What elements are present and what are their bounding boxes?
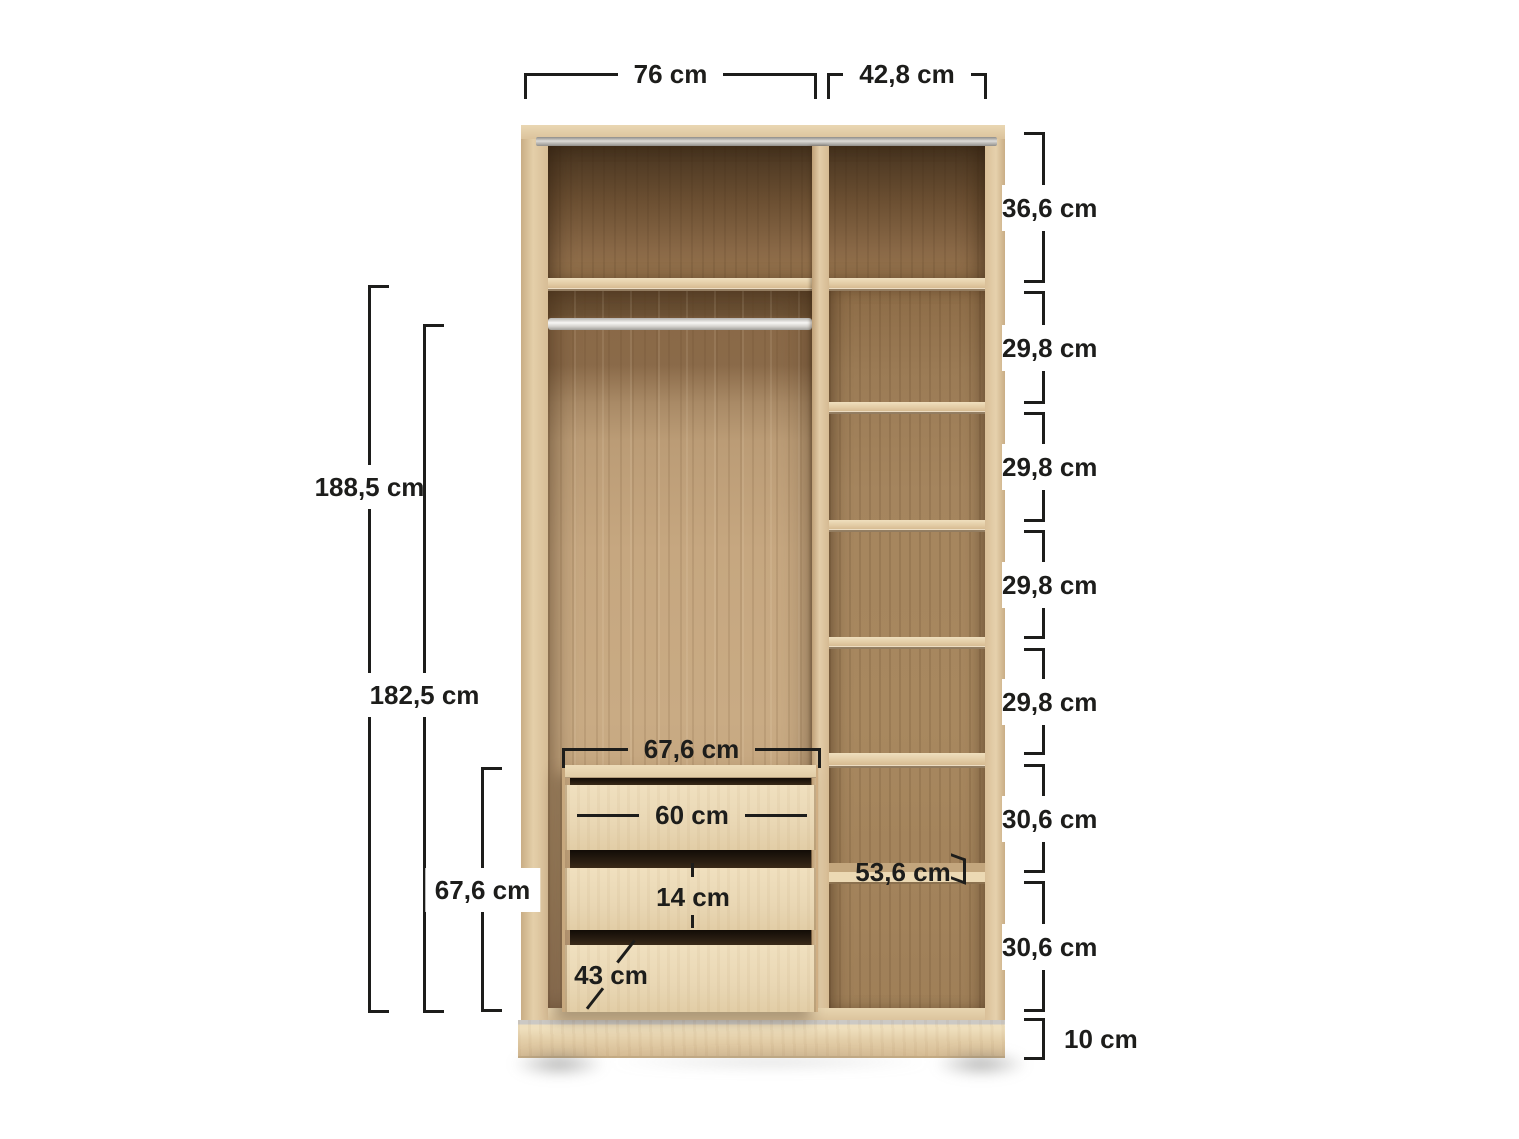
hanging-rod <box>548 318 812 330</box>
drawer-unit-top-board <box>565 765 816 778</box>
right-shelf-2 <box>829 520 985 532</box>
dim-label: 29,8 cm <box>1002 325 1107 371</box>
dim-label: 182,5 cm <box>360 673 490 717</box>
dim-label: 60 cm <box>639 802 745 828</box>
right-compartment-back <box>829 291 985 1008</box>
dim-shelf-depth: 53,6 cm <box>855 859 950 885</box>
dim-label: 36,6 cm <box>1002 185 1107 231</box>
dim-drawer-inner-height: 14 cm <box>656 884 730 910</box>
dim-label: 42,8 cm <box>843 61 970 87</box>
top-shelf <box>548 278 985 291</box>
dim-drawer-unit-height: 67,6 cm <box>481 767 484 1012</box>
floor-shadow-center <box>560 1052 980 1072</box>
dim-shelf-section-5-height: 30,6 cm <box>1042 764 1045 873</box>
drawer-gap <box>570 930 811 945</box>
dim-shelf-section-4-height: 29,8 cm <box>1042 648 1045 755</box>
dim-label: 30,6 cm <box>1002 796 1107 842</box>
right-shelf-3 <box>829 637 985 649</box>
right-shelf-1 <box>829 402 985 414</box>
drawer-gap <box>570 778 811 785</box>
dim-shelf-section-1-height: 29,8 cm <box>1042 291 1045 404</box>
dim-label: 29,8 cm <box>1002 679 1107 725</box>
dim-label: 188,5 cm <box>305 465 435 509</box>
dim-plinth-height: 10 cm <box>1042 1018 1045 1060</box>
dim-label: 30,6 cm <box>1002 924 1107 970</box>
dim-label: 10 cm <box>1064 1026 1138 1052</box>
dim-drawer-depth: 43 cm <box>574 962 648 988</box>
sliding-door-rail <box>536 137 997 146</box>
wardrobe-dimension-diagram: 76 cm 42,8 cm 36,6 cm 29,8 cm 29,8 cm 29… <box>0 0 1519 1139</box>
dim-shelf-section-2-height: 29,8 cm <box>1042 412 1045 522</box>
dim-top-compartment-height: 36,6 cm <box>1042 132 1045 283</box>
dim-label: 67,6 cm <box>425 868 540 912</box>
right-shelf-4 <box>829 753 985 768</box>
dim-label: 29,8 cm <box>1002 444 1107 490</box>
dim-label: 76 cm <box>618 61 724 87</box>
dim-drawer-inner-height-tick-bottom <box>691 915 694 928</box>
top-compartment-back <box>548 146 985 278</box>
dim-shelf-section-6-height: 30,6 cm <box>1042 881 1045 1012</box>
dim-interior-height: 188,5 cm <box>368 285 371 1013</box>
dim-label: 29,8 cm <box>1002 562 1107 608</box>
dim-shelf-depth-bracket <box>951 853 966 884</box>
dim-label: 67,6 cm <box>628 736 755 762</box>
dim-drawer-inner-height-tick-top <box>691 863 694 877</box>
dim-shelf-section-3-height: 29,8 cm <box>1042 530 1045 639</box>
